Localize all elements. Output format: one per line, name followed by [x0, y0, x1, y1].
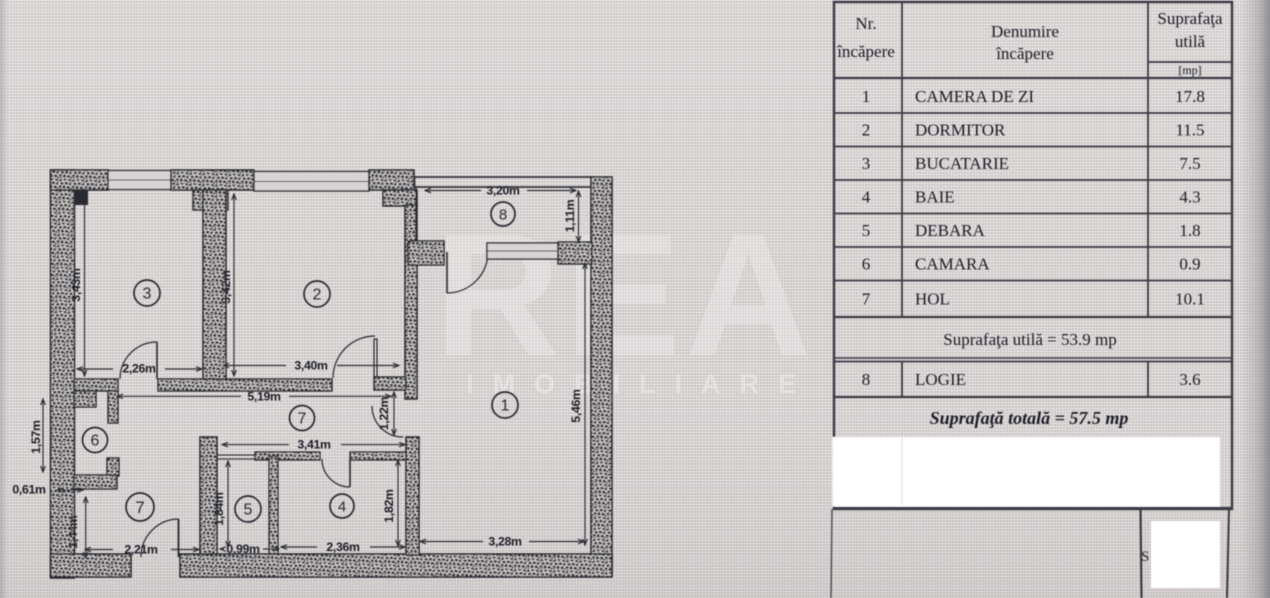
svg-text:BUCATARIE: BUCATARIE — [915, 154, 1009, 173]
svg-text:6: 6 — [862, 255, 871, 274]
svg-text:3,40m: 3,40m — [294, 359, 328, 373]
svg-text:5: 5 — [244, 502, 253, 519]
svg-text:3: 3 — [143, 286, 152, 303]
svg-text:2,36m: 2,36m — [326, 540, 360, 554]
svg-text:1,11m: 1,11m — [563, 199, 577, 232]
svg-text:0,61m: 0,61m — [12, 483, 46, 497]
svg-text:3,43m: 3,43m — [69, 268, 83, 302]
svg-text:2: 2 — [313, 287, 322, 304]
svg-text:Nr.: Nr. — [855, 14, 876, 33]
svg-text:7: 7 — [862, 290, 871, 309]
svg-text:IMOBILIARE: IMOBILIARE — [466, 369, 815, 399]
svg-text:10.1: 10.1 — [1175, 290, 1205, 309]
svg-text:8: 8 — [862, 370, 871, 389]
svg-text:3,41m: 3,41m — [297, 438, 331, 452]
svg-text:2: 2 — [862, 121, 871, 140]
svg-text:Suprafaţă totală = 57.5 mp: Suprafaţă totală = 57.5 mp — [930, 408, 1129, 428]
svg-text:3,20m: 3,20m — [486, 184, 520, 198]
svg-text:3: 3 — [862, 154, 871, 173]
svg-text:2,26m: 2,26m — [122, 362, 156, 376]
svg-text:1,57m: 1,57m — [29, 420, 43, 454]
svg-text:S: S — [1141, 549, 1149, 565]
svg-text:DORMITOR: DORMITOR — [915, 121, 1006, 140]
svg-text:4: 4 — [338, 499, 346, 516]
svg-text:6: 6 — [91, 433, 100, 450]
svg-text:Suprafaţa utilă = 53.9 mp: Suprafaţa utilă = 53.9 mp — [943, 330, 1116, 349]
svg-text:8: 8 — [499, 207, 507, 224]
svg-text:17.8: 17.8 — [1175, 87, 1205, 106]
svg-text:LOGIE: LOGIE — [915, 370, 966, 389]
svg-text:CAMARA: CAMARA — [915, 255, 990, 274]
svg-text:[mp]: [mp] — [1178, 63, 1201, 77]
svg-text:încăpere: încăpere — [836, 42, 895, 61]
svg-text:1.8: 1.8 — [1179, 221, 1200, 240]
svg-text:11.5: 11.5 — [1175, 121, 1204, 140]
svg-text:1,84m: 1,84m — [212, 492, 226, 526]
svg-text:BAIE: BAIE — [915, 188, 955, 207]
svg-text:1: 1 — [862, 87, 871, 106]
svg-text:2,21m: 2,21m — [124, 543, 158, 557]
svg-text:HOL: HOL — [915, 290, 950, 309]
svg-text:4.3: 4.3 — [1179, 188, 1200, 207]
svg-text:7: 7 — [135, 498, 144, 517]
svg-text:5,46m: 5,46m — [569, 389, 583, 423]
svg-text:1,22m: 1,22m — [377, 396, 391, 430]
svg-text:Denumire: Denumire — [991, 22, 1059, 41]
svg-text:3.6: 3.6 — [1179, 370, 1200, 389]
svg-text:3,28m: 3,28m — [488, 535, 522, 549]
svg-text:1,82m: 1,82m — [382, 489, 396, 523]
svg-text:7.5: 7.5 — [1179, 154, 1200, 173]
svg-text:4: 4 — [862, 188, 871, 207]
svg-text:7: 7 — [298, 411, 307, 428]
svg-text:5,19m: 5,19m — [247, 389, 281, 403]
svg-text:1: 1 — [501, 398, 510, 415]
svg-text:0.9: 0.9 — [1179, 255, 1200, 274]
svg-text:DEBARA: DEBARA — [915, 221, 986, 240]
svg-text:încăpere: încăpere — [995, 44, 1054, 63]
svg-text:Suprafaţa: Suprafaţa — [1157, 9, 1223, 28]
svg-text:utilă: utilă — [1175, 32, 1206, 51]
svg-text:REA: REA — [434, 198, 815, 393]
svg-text:1,44m: 1,44m — [66, 515, 80, 549]
svg-text:3,42m: 3,42m — [219, 270, 233, 304]
svg-text:5: 5 — [862, 221, 871, 240]
svg-text:CAMERA DE ZI: CAMERA DE ZI — [915, 87, 1034, 106]
svg-text:0,99m: 0,99m — [226, 542, 260, 556]
